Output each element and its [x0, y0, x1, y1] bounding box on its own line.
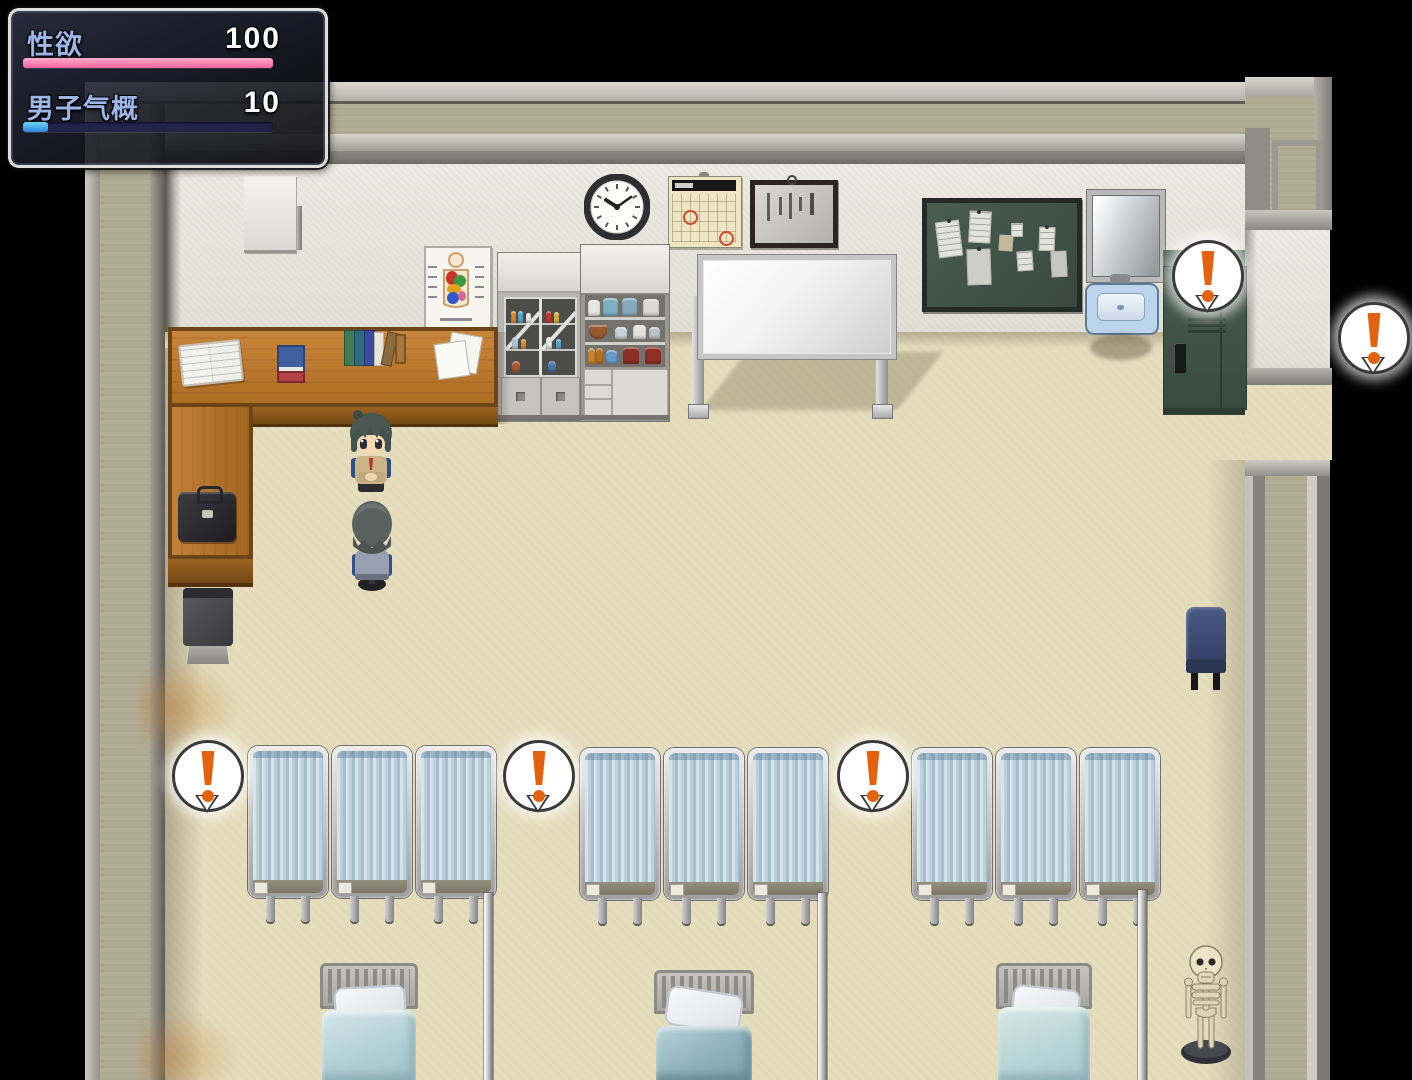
jar [633, 325, 646, 339]
jar [623, 347, 639, 364]
wall-calendar [668, 176, 742, 248]
back-wall-corner-shadow [165, 164, 181, 332]
door-handle-rail [297, 206, 302, 250]
pinned-paper [998, 235, 1013, 252]
exclamation-icon [531, 751, 547, 785]
game-viewport: 性欲 100 男子气概 10 [0, 0, 1412, 1080]
desk-right-shadow [498, 332, 510, 424]
jar [649, 327, 660, 339]
privacy-screen[interactable] [248, 746, 328, 898]
event-exclamation-bubble[interactable] [1338, 302, 1410, 374]
privacy-screen[interactable] [332, 746, 412, 898]
exclamation-icon-dot [1368, 352, 1380, 364]
right-wall-white-cap [1245, 368, 1332, 385]
wall-mirror [1087, 190, 1165, 282]
privacy-screen[interactable] [416, 746, 496, 898]
privacy-screen[interactable] [748, 748, 828, 900]
jar [643, 299, 659, 316]
curtain-rail-pole [1138, 890, 1147, 1080]
privacy-screen[interactable] [580, 748, 660, 900]
stat-value-masculinity: 10 [244, 86, 281, 120]
supply-shelf [580, 244, 670, 422]
right-wall [1265, 476, 1307, 1080]
privacy-screen[interactable] [664, 748, 744, 900]
npc-nurse[interactable] [342, 408, 400, 496]
trash-bin [183, 588, 233, 666]
pinned-paper [935, 220, 963, 259]
player-character[interactable] [344, 496, 400, 592]
bowl [589, 325, 607, 339]
infirmary-bed[interactable] [654, 970, 754, 1080]
exclamation-icon [1200, 251, 1216, 285]
wall-clock [584, 174, 650, 240]
open-book [178, 339, 244, 387]
desk-side-front [168, 559, 253, 587]
privacy-screen[interactable] [1080, 748, 1160, 900]
calendar-header [672, 180, 736, 191]
sliding-door[interactable] [244, 176, 296, 253]
jar [588, 300, 600, 316]
side-chair [1186, 607, 1226, 691]
pinned-paper [1016, 250, 1033, 271]
bookshelf-stand [344, 328, 406, 366]
left-wall-outer-trim [85, 104, 100, 1080]
floor-light-smudge [140, 1008, 240, 1080]
whiteboard-foot [688, 404, 709, 419]
calendar-hanger [699, 172, 709, 177]
right-wall-trim-d [1317, 476, 1330, 1080]
exclamation-icon-dot [1202, 290, 1214, 302]
event-exclamation-bubble[interactable] [1172, 240, 1244, 312]
locker-handle [1174, 343, 1186, 373]
briefcase [178, 492, 236, 542]
exclamation-icon-dot [867, 790, 879, 802]
stat-label-libido: 性欲 [27, 23, 83, 62]
event-exclamation-bubble[interactable] [503, 740, 575, 812]
left-wall [100, 104, 150, 1080]
status-window: 性欲 100 男子气概 10 [8, 8, 328, 168]
left-wall-inner-trim [150, 104, 165, 1080]
stat-gauge-masculinity [23, 122, 273, 132]
exclamation-icon-dot [533, 790, 545, 802]
pinned-paper [968, 210, 992, 243]
right-wall-trim-b [1253, 476, 1265, 1080]
pinned-paper [1011, 223, 1023, 237]
infirmary-bed[interactable] [320, 963, 418, 1080]
privacy-screen[interactable] [996, 748, 1076, 900]
jar [645, 347, 661, 364]
right-wall-trim-a [1245, 476, 1253, 1080]
curtain-rail-pole [818, 893, 827, 1080]
sink [1085, 283, 1159, 335]
cup [606, 350, 617, 364]
stat-label-masculinity: 男子气概 [27, 87, 139, 126]
shelf-rows [585, 295, 665, 367]
right-wall-top-cap [1245, 460, 1330, 476]
jar [615, 327, 627, 339]
stat-value-libido: 100 [225, 22, 281, 56]
sink-floor-shadow [1090, 334, 1152, 360]
bottle [596, 348, 603, 364]
pinned-paper [966, 249, 991, 286]
stat-gauge-libido [23, 58, 273, 68]
bottle [588, 348, 595, 364]
jar [603, 298, 618, 316]
calendar-mark [683, 210, 698, 225]
infirmary-bed[interactable] [996, 963, 1092, 1080]
right-doorway-floor[interactable] [1245, 385, 1332, 460]
whiteboard-foot [872, 404, 893, 419]
exclamation-icon-dot [202, 790, 214, 802]
bulletin-board [922, 198, 1082, 312]
shelf-lower-cabinet [584, 369, 668, 417]
event-exclamation-bubble[interactable] [837, 740, 909, 812]
cabinet-sliding-doors [501, 377, 580, 417]
framed-certificate [750, 180, 838, 248]
certificate-hook [787, 175, 797, 185]
floor-light-smudge [140, 658, 240, 758]
curtain-rail-pole [484, 893, 493, 1080]
exclamation-icon [200, 751, 216, 785]
book-stack [277, 345, 305, 383]
exclamation-icon [1366, 313, 1382, 347]
privacy-screen[interactable] [912, 748, 992, 900]
jar [622, 298, 637, 316]
calendar-mark [719, 231, 734, 246]
right-wall-trim-c [1307, 476, 1317, 1080]
pinned-paper [1039, 227, 1056, 252]
whiteboard [698, 255, 896, 359]
pinned-paper [1050, 251, 1067, 278]
right-corner-bottom-cap [1245, 210, 1332, 230]
scattered-papers [436, 334, 484, 378]
event-exclamation-bubble[interactable] [172, 740, 244, 812]
exclamation-icon [865, 751, 881, 785]
anatomy-chart [424, 246, 492, 334]
right-wall-white [1245, 230, 1330, 370]
skeleton-model [1176, 930, 1236, 1066]
cabinet-glass [504, 297, 577, 377]
